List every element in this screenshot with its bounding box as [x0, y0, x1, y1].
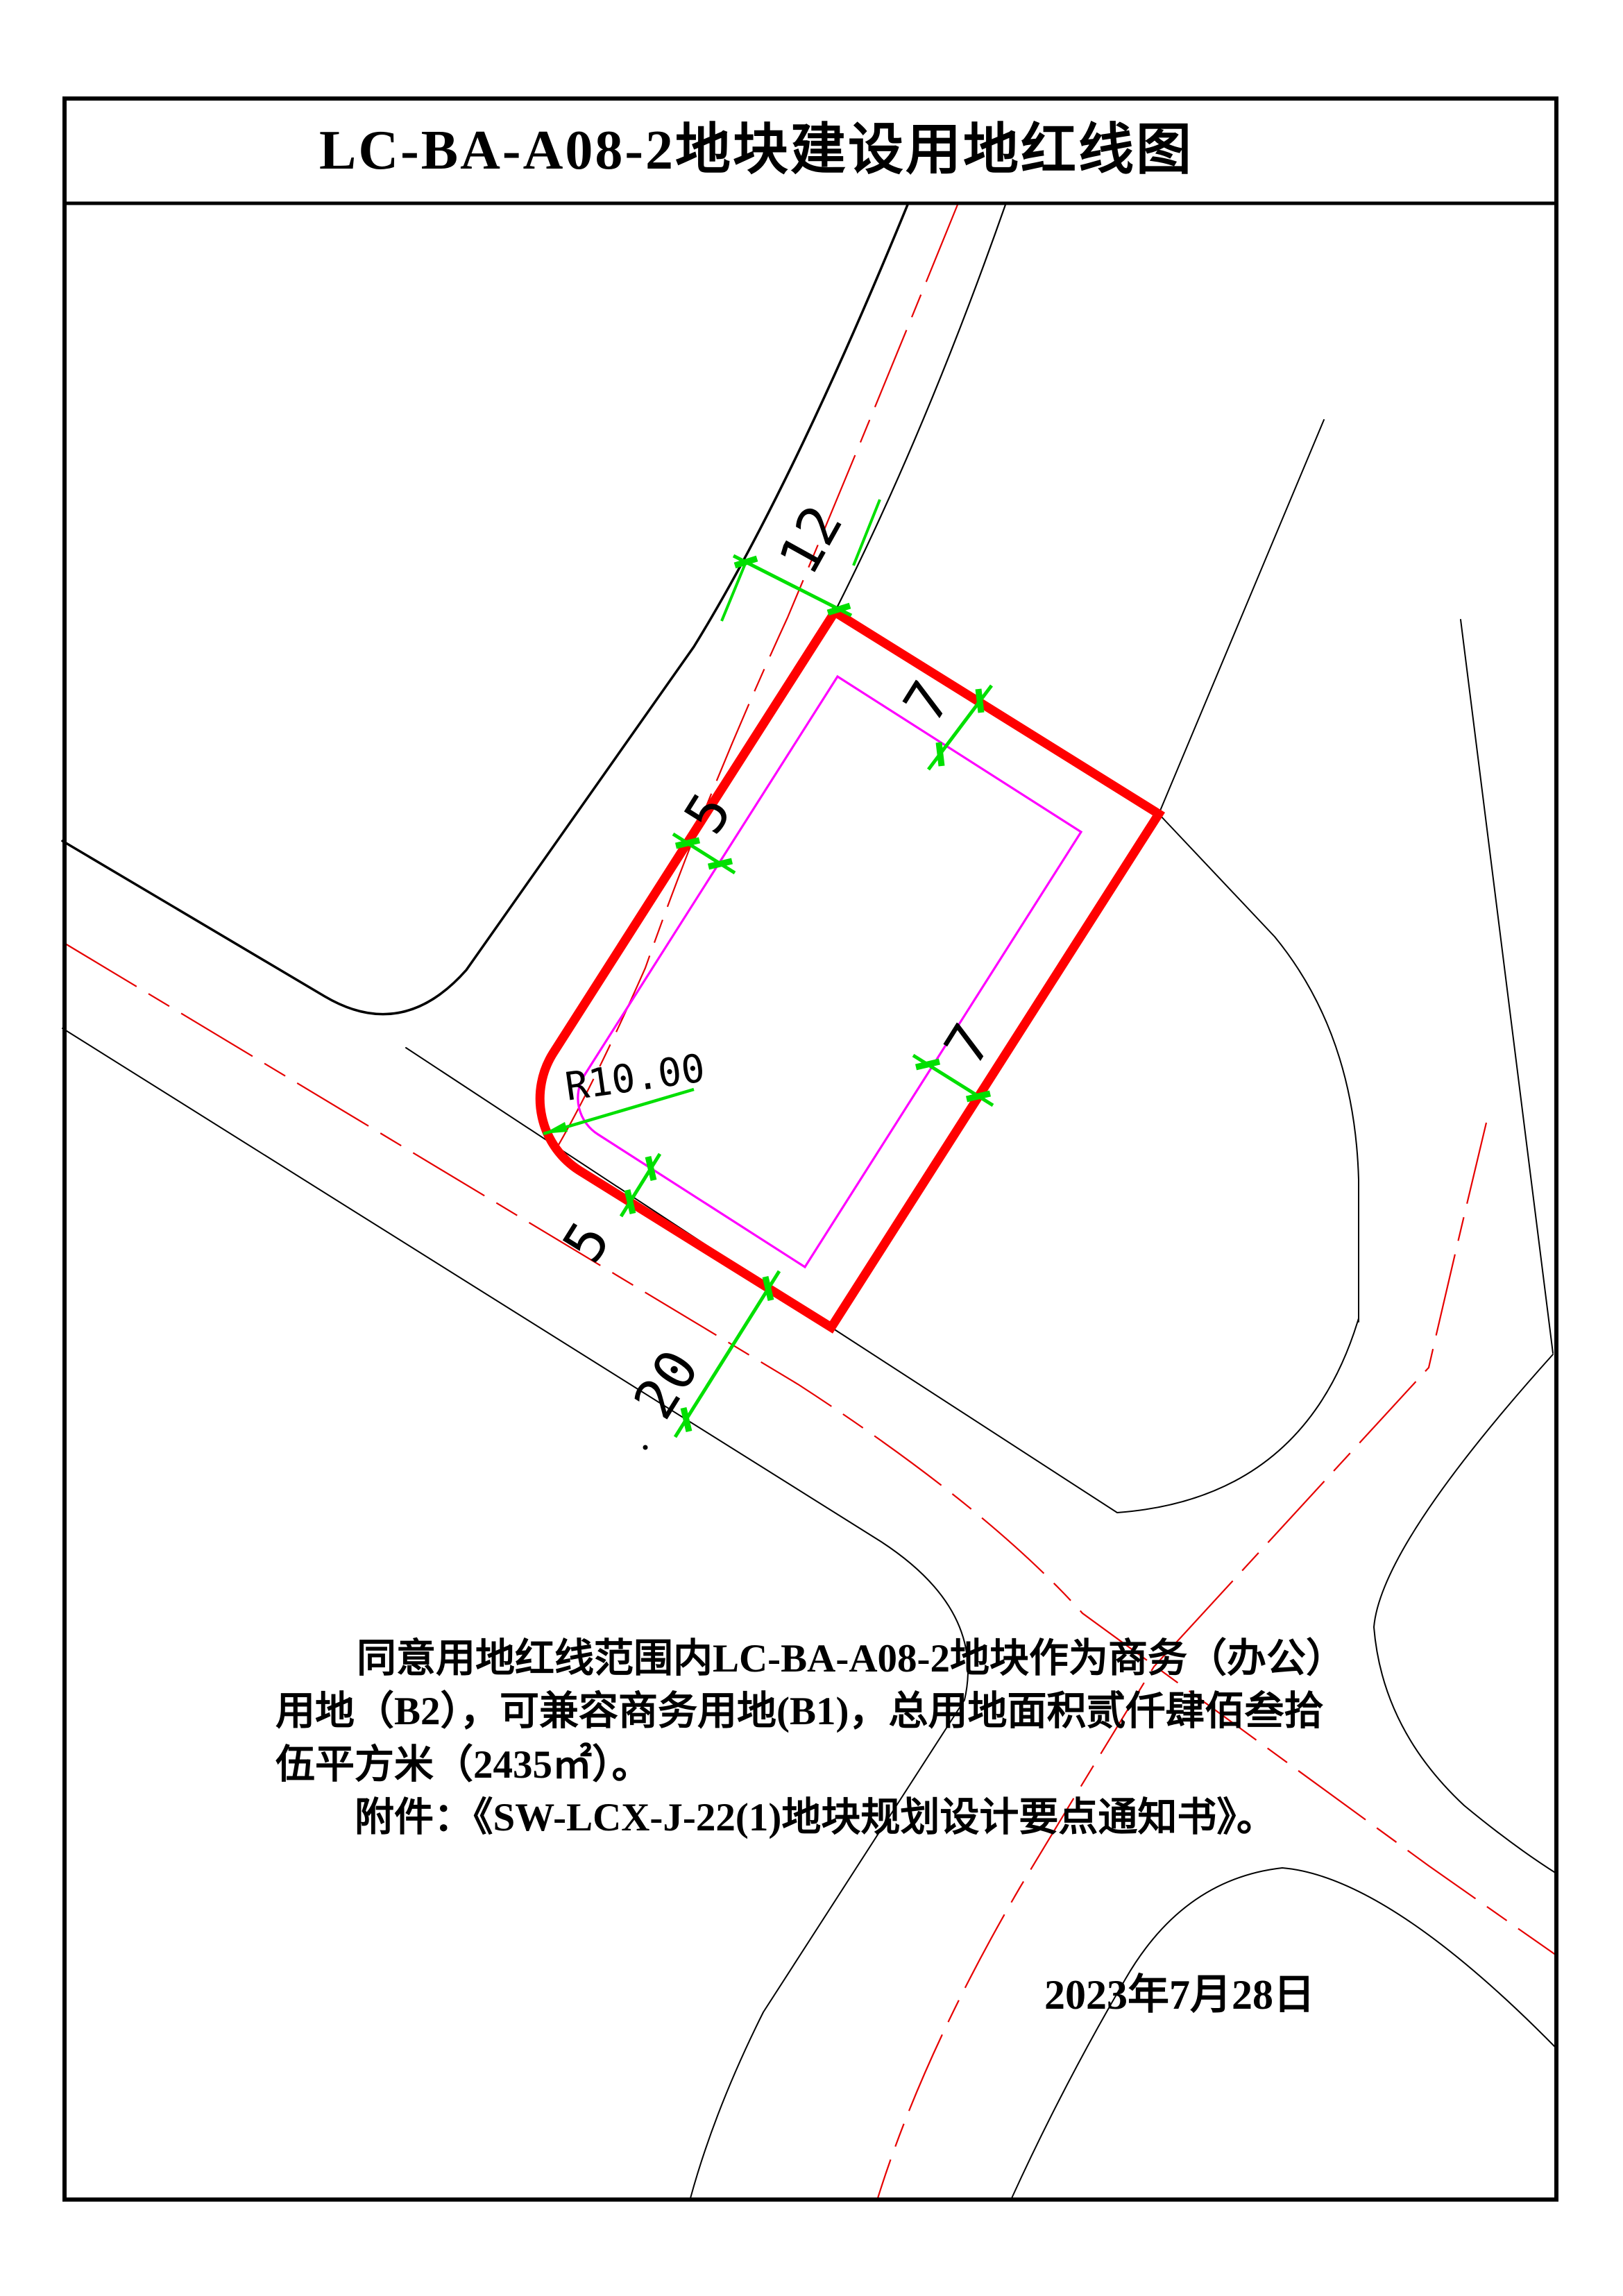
- road-edge-topleft-block: [62, 205, 908, 1014]
- dim-label-5-southwest: 5: [550, 1211, 622, 1273]
- road-edge-right-road-east: [1461, 620, 1553, 1353]
- road-fillet-east-corner: [1374, 1354, 1556, 1873]
- note-line-4: 附件：《SW-LCX-J-22(1)地块规划设计要点通知书》。: [355, 1796, 1276, 1839]
- date-label: 2023年7月28日: [1044, 1972, 1315, 2018]
- road-fillet-south-corner: [1012, 1868, 1556, 2198]
- red-line-boundary: [540, 612, 1159, 1327]
- page-title: LC-BA-A08-2地块建设用地红线图: [319, 120, 1193, 181]
- centerline-top-road: [554, 205, 958, 1153]
- dimension-20: [675, 1271, 779, 1437]
- dim-label-20: 20: [621, 1339, 711, 1430]
- radius-label: R10.00: [563, 1046, 708, 1110]
- drawing-canvas: 12 7 5 7 5 20 R10.00 LC-BA-A08-2地块建设用地红线…: [0, 0, 1623, 2296]
- note-line-2: 用地（B2），可兼容商务用地(B1)，总用地面积贰仟肆佰叁拾: [275, 1690, 1324, 1733]
- sheet-border: [65, 99, 1556, 2200]
- dim-label-5-northwest: 5: [672, 782, 744, 844]
- dim-label-7-north: 7: [891, 670, 963, 733]
- red-line-map-sheet: 12 7 5 7 5 20 R10.00 LC-BA-A08-2地块建设用地红线…: [0, 0, 1623, 2296]
- dim-label-12: 12: [766, 495, 855, 585]
- road-edge-right-road-west-upper: [1159, 420, 1324, 814]
- road-edge-bottom-road-upper: [406, 1048, 1359, 1513]
- approval-notes: 同意用地红线范围内LC-BA-A08-2地块作为商务（办公） 用地（B2），可兼…: [275, 1637, 1345, 1839]
- road-edge-right-road-west-lower: [1159, 814, 1359, 1322]
- road-edge-bottom-road-lower: [62, 1028, 968, 2198]
- note-line-3: 伍平方米（2435㎡）。: [275, 1742, 652, 1787]
- note-line-1: 同意用地红线范围内LC-BA-A08-2地块作为商务（办公）: [357, 1637, 1345, 1681]
- plot-dot: [643, 1445, 648, 1450]
